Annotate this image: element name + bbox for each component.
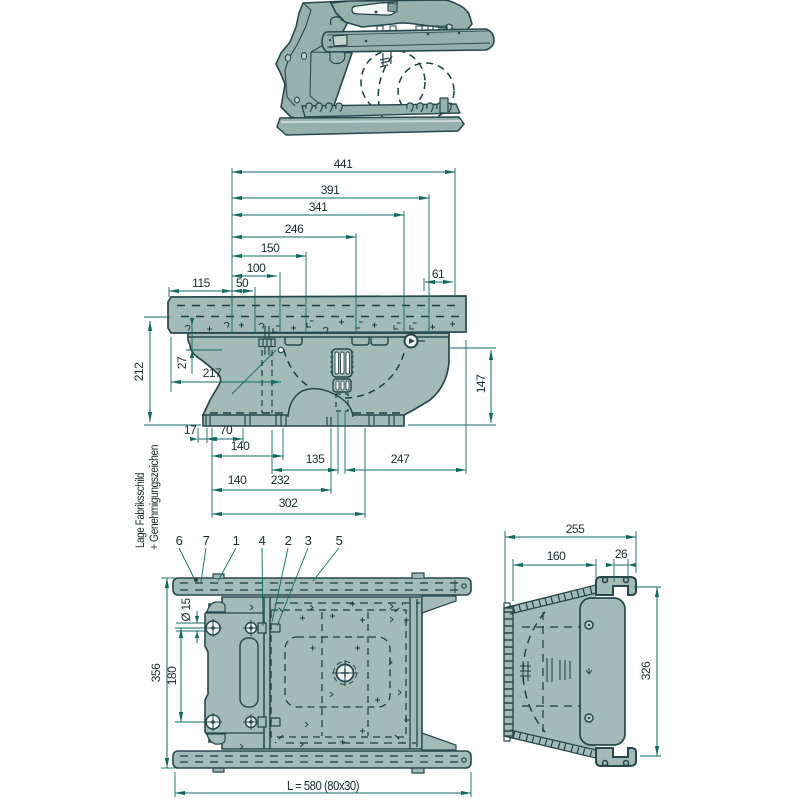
svg-text:+ Genehmigungszeichen: + Genehmigungszeichen <box>149 445 161 550</box>
svg-text:6: 6 <box>176 533 183 548</box>
svg-text:302: 302 <box>279 496 298 510</box>
svg-text:Lage Fabriksschild: Lage Fabriksschild <box>135 473 147 548</box>
svg-text:180: 180 <box>165 666 179 685</box>
svg-text:3: 3 <box>305 533 312 548</box>
svg-text:160: 160 <box>547 549 566 563</box>
svg-text:L = 580 (80x30): L = 580 (80x30) <box>287 779 359 793</box>
svg-text:27: 27 <box>175 356 189 369</box>
svg-text:356: 356 <box>149 663 163 682</box>
svg-text:212: 212 <box>132 362 146 381</box>
svg-text:217: 217 <box>203 366 222 380</box>
svg-text:147: 147 <box>474 374 488 393</box>
svg-text:150: 150 <box>261 241 280 255</box>
svg-text:140: 140 <box>228 473 247 487</box>
svg-text:17: 17 <box>184 423 197 437</box>
svg-text:391: 391 <box>321 183 340 197</box>
svg-text:115: 115 <box>192 276 210 290</box>
svg-text:100: 100 <box>247 261 266 275</box>
svg-text:Ø 15: Ø 15 <box>181 598 193 621</box>
svg-text:341: 341 <box>309 200 328 214</box>
svg-text:255: 255 <box>566 522 585 536</box>
svg-text:135: 135 <box>306 452 325 466</box>
svg-text:70: 70 <box>220 423 233 437</box>
svg-text:61: 61 <box>432 267 445 281</box>
svg-text:7: 7 <box>203 533 210 548</box>
svg-text:326: 326 <box>639 661 653 680</box>
svg-text:441: 441 <box>334 157 353 171</box>
svg-text:246: 246 <box>285 222 304 236</box>
svg-text:2: 2 <box>285 533 292 548</box>
svg-text:232: 232 <box>271 473 290 487</box>
svg-text:50: 50 <box>236 276 249 290</box>
svg-text:5: 5 <box>336 533 343 548</box>
svg-text:26: 26 <box>615 547 628 561</box>
svg-text:140: 140 <box>231 439 250 453</box>
svg-text:1: 1 <box>233 533 240 548</box>
svg-text:247: 247 <box>391 452 410 466</box>
svg-text:4: 4 <box>259 533 266 548</box>
